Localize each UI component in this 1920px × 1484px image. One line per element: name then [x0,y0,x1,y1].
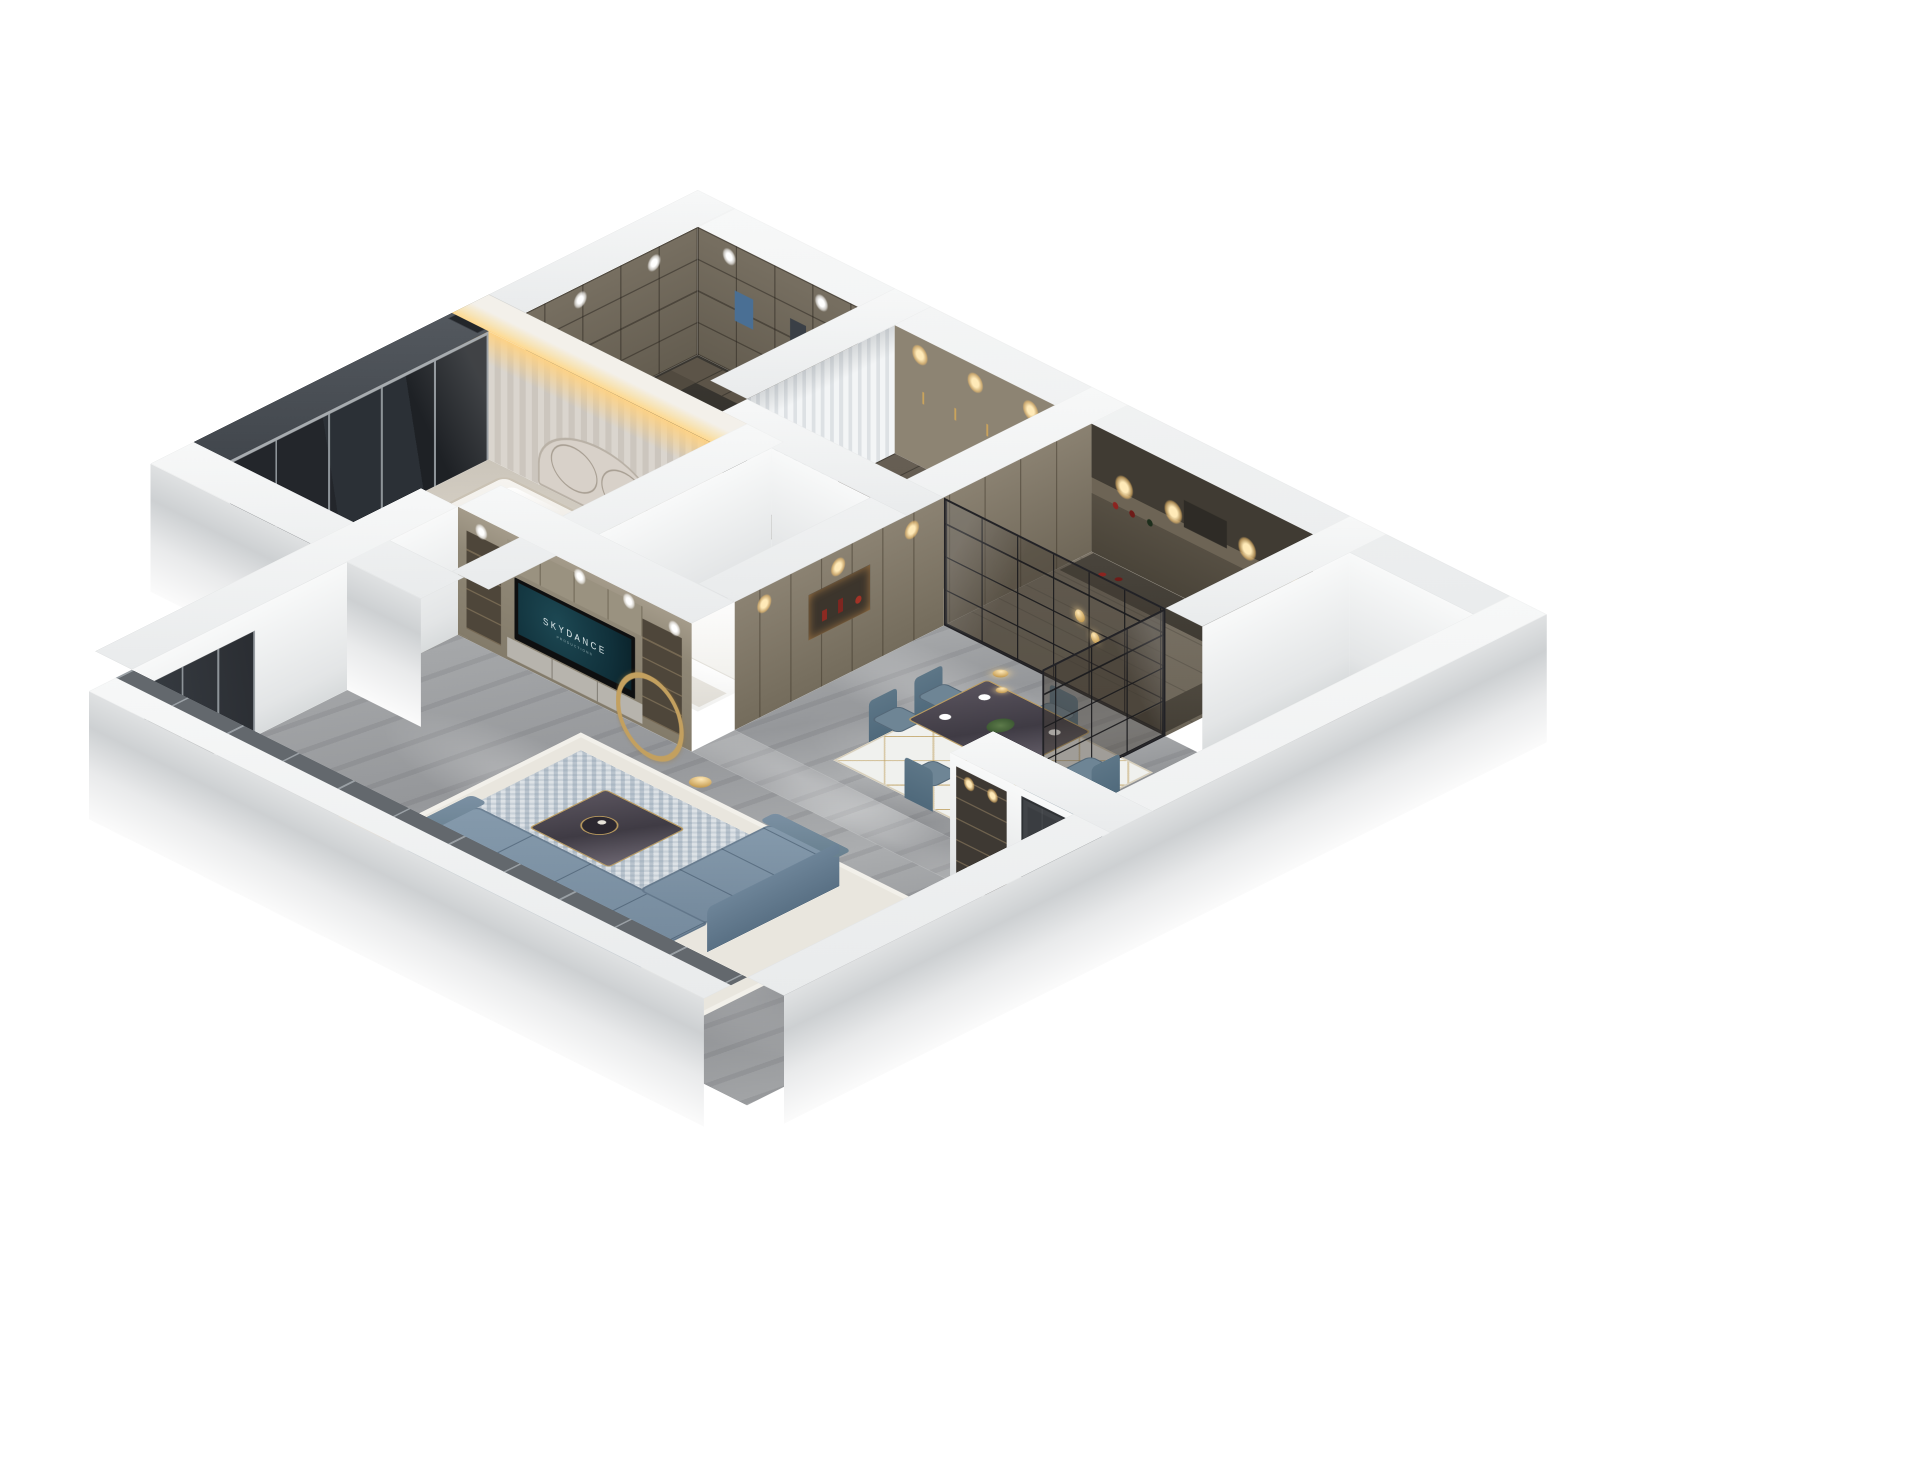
table-centerpiece [981,716,1020,736]
decor-tray [572,812,626,839]
pendant-lamp-icon [1075,607,1085,624]
cabinet-light-icon [1164,496,1182,528]
downlight-icon [757,591,772,616]
downlight-icon [912,341,928,369]
downlight-icon [574,288,588,311]
cabinet-light-icon [1238,533,1256,565]
page: { "scene": { "type": "3d-isometric-floor… [0,0,1920,1484]
downlight-icon [964,775,975,794]
cabinet-light-icon [1115,471,1133,503]
downlight-icon [967,369,983,397]
wardrobe-handle [954,408,956,421]
headboard-pattern [551,435,598,502]
red-decor [822,609,827,622]
downlight-icon [722,245,736,268]
red-decor [855,594,861,605]
wine-bottles [1110,499,1165,534]
display-niche [809,564,871,640]
wardrobe-handle [986,424,988,437]
downlight-icon [905,517,920,542]
plate [937,713,954,722]
downlight-icon [831,554,846,579]
downlight-icon [647,251,661,274]
hanging-clothes [735,290,753,329]
downlight-icon [987,786,998,805]
wardrobe-handle [922,392,924,405]
range-hood [1184,500,1227,549]
red-decor [838,598,843,614]
plate [976,693,993,702]
downlight-icon [815,291,829,314]
